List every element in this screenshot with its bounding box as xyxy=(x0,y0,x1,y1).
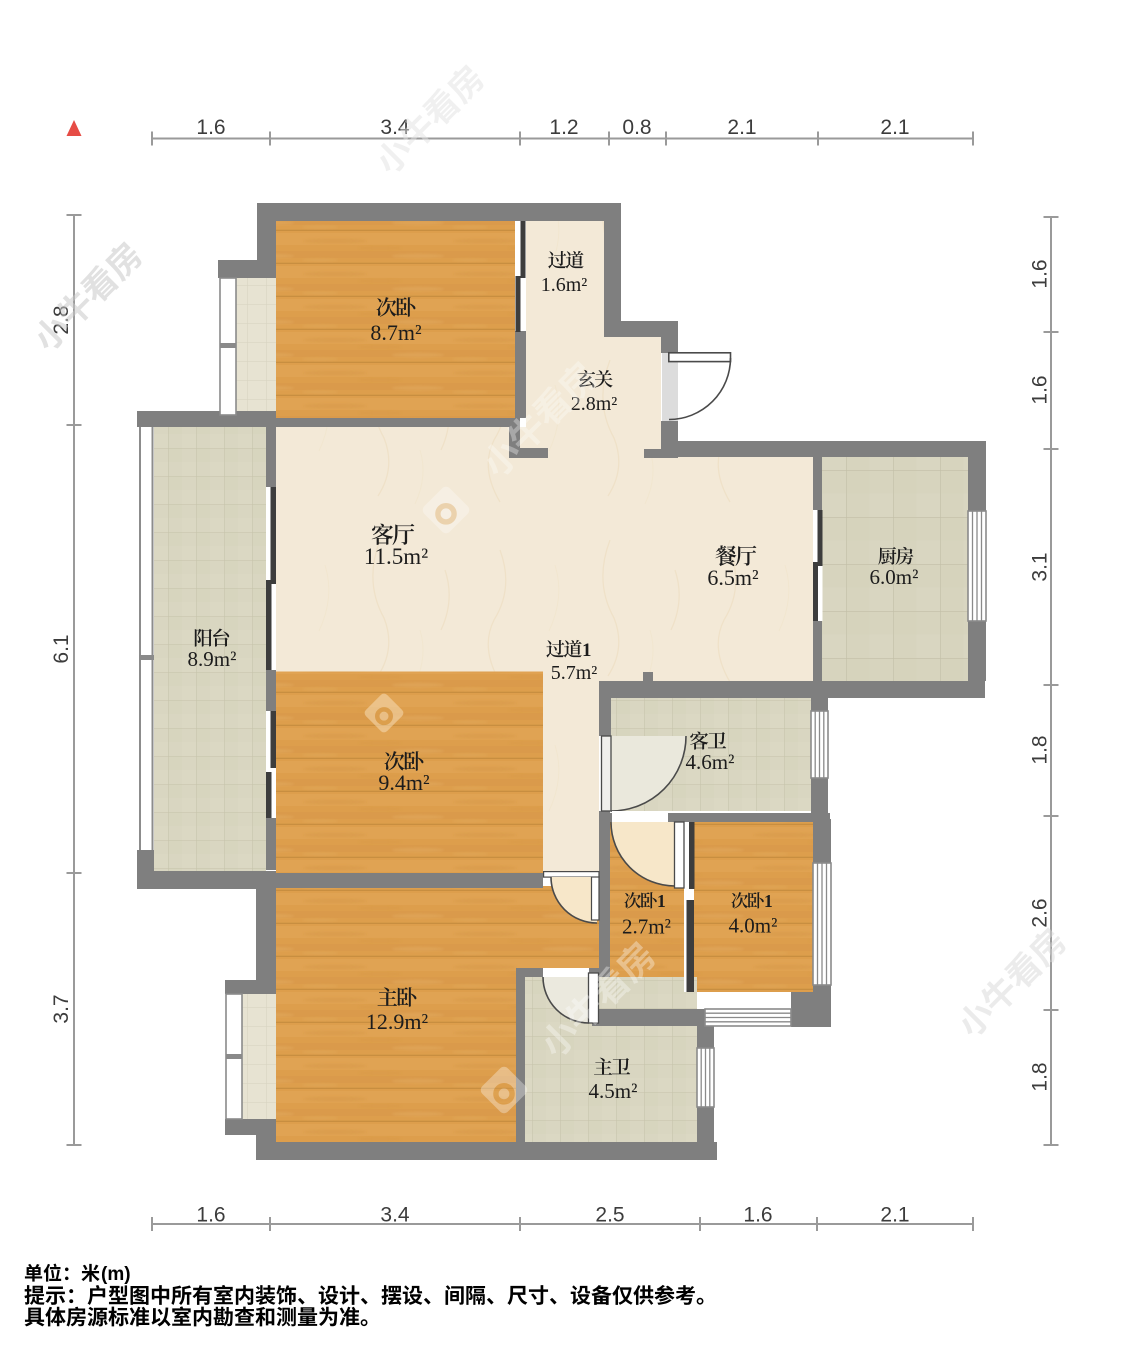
svg-text:8.9m²: 8.9m² xyxy=(188,647,237,671)
svg-text:1.6: 1.6 xyxy=(743,1204,772,1227)
svg-text:2.8m²: 2.8m² xyxy=(571,393,618,415)
svg-text:1.8: 1.8 xyxy=(1029,1062,1052,1091)
svg-text:1: 1 xyxy=(764,891,773,911)
svg-text:1.6m²: 1.6m² xyxy=(541,274,588,296)
svg-text:2.7m²: 2.7m² xyxy=(622,915,671,939)
svg-text:8.7m²: 8.7m² xyxy=(370,320,422,345)
svg-text:3.4: 3.4 xyxy=(380,1204,410,1227)
svg-text:1.2: 1.2 xyxy=(549,116,578,139)
svg-text:1.6: 1.6 xyxy=(1029,375,1052,404)
svg-text:2.1: 2.1 xyxy=(880,1204,909,1227)
svg-text:1.6: 1.6 xyxy=(1029,259,1052,288)
svg-text:6.1: 6.1 xyxy=(50,634,73,663)
svg-text:1.6: 1.6 xyxy=(196,116,225,139)
svg-text:2.1: 2.1 xyxy=(727,116,756,139)
svg-text:12.9m²: 12.9m² xyxy=(366,1009,429,1034)
svg-text:11.5m²: 11.5m² xyxy=(364,544,428,569)
svg-text:6.0m²: 6.0m² xyxy=(870,565,919,589)
svg-text:4.6m²: 4.6m² xyxy=(686,750,735,774)
svg-text:4.0m²: 4.0m² xyxy=(729,914,778,938)
svg-text:4.5m²: 4.5m² xyxy=(589,1079,638,1103)
svg-text:3.1: 3.1 xyxy=(1029,552,1052,581)
svg-text:1: 1 xyxy=(582,640,592,661)
svg-text:9.4m²: 9.4m² xyxy=(378,770,430,795)
svg-text:1.8: 1.8 xyxy=(1029,735,1052,764)
svg-text:1: 1 xyxy=(657,891,666,911)
svg-text:3.7: 3.7 xyxy=(50,994,73,1023)
svg-text:2.6: 2.6 xyxy=(1029,898,1052,927)
svg-text:0.8: 0.8 xyxy=(622,116,651,139)
svg-text:5.7m²: 5.7m² xyxy=(551,662,598,684)
svg-text:2.5: 2.5 xyxy=(595,1204,624,1227)
svg-text:2.1: 2.1 xyxy=(880,116,909,139)
svg-text:1.6: 1.6 xyxy=(196,1204,225,1227)
svg-text:6.5m²: 6.5m² xyxy=(707,565,759,590)
svg-text:(m): (m) xyxy=(101,1264,131,1285)
